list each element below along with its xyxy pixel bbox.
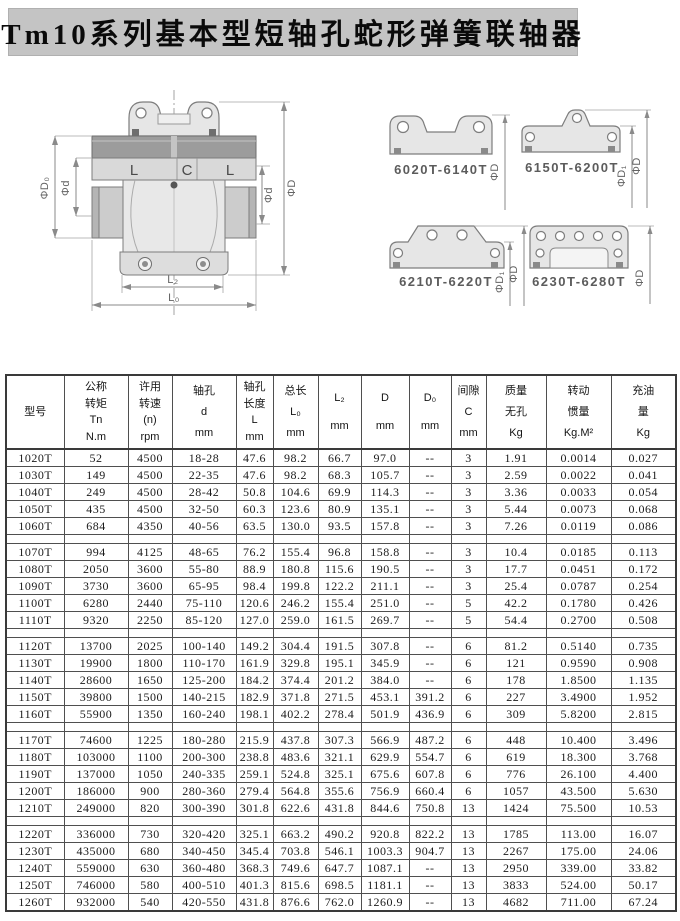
cell-oil-fill: 0.041 (611, 467, 676, 484)
variant-range-label: 6210T-6220T (399, 274, 493, 289)
cell-l2: 647.7 (318, 860, 361, 877)
cell-bore-d: 360-480 (172, 860, 236, 877)
cell-model: 1190T (6, 766, 64, 783)
cell-model: 1070T (6, 544, 64, 561)
cell-bore-d: 55-80 (172, 561, 236, 578)
cell-clearance: 6 (451, 732, 486, 749)
cell-total-length: 815.6 (273, 877, 318, 894)
cell-allowable-speed: 1350 (128, 706, 172, 723)
col-header-line: Kg (509, 427, 522, 439)
col-header-lines: 公称转矩TnN.m (65, 376, 128, 448)
cell-d: 920.8 (361, 826, 409, 843)
cell-d0: 660.4 (409, 783, 451, 800)
cell-mass: 1.91 (486, 449, 546, 467)
cell-d0: -- (409, 544, 451, 561)
col-header-clearance: 间隙Cmm (451, 375, 486, 449)
cell-d: 251.0 (361, 595, 409, 612)
cell-oil-fill: 33.82 (611, 860, 676, 877)
cell-allowable-speed: 4500 (128, 449, 172, 467)
cell-d0: -- (409, 484, 451, 501)
table-row: 1250T746000580400-510401.3815.6698.51181… (6, 877, 676, 894)
table-row: 1180T1030001100200-300238.8483.6321.1629… (6, 749, 676, 766)
col-header-lines: 轴孔dmm (173, 376, 236, 448)
col-header-lines: D₀mm (410, 376, 451, 448)
spacer-cell (236, 817, 273, 826)
cell-inertia: 0.0073 (546, 501, 611, 518)
cell-d: 105.7 (361, 467, 409, 484)
cell-oil-fill: 16.07 (611, 826, 676, 843)
spacer-cell (318, 535, 361, 544)
cell-clearance: 3 (451, 484, 486, 501)
spacer-cell (6, 817, 64, 826)
group-spacer-row (6, 535, 676, 544)
cell-bore-d: 65-95 (172, 578, 236, 595)
cell-clearance: 13 (451, 800, 486, 817)
cell-total-length: 98.2 (273, 467, 318, 484)
cell-bore-d: 28-42 (172, 484, 236, 501)
cell-clearance: 3 (451, 578, 486, 595)
table-row: 1230T435000680340-450345.4703.8546.11003… (6, 843, 676, 860)
cell-mass: 42.2 (486, 595, 546, 612)
cell-nominal-torque: 52 (64, 449, 128, 467)
table-row: 1090T3730360065-9598.4199.8122.2211.1--3… (6, 578, 676, 595)
variant-range-label: 6230T-6280T (532, 274, 626, 289)
cell-nominal-torque: 137000 (64, 766, 128, 783)
cell-d0: -- (409, 449, 451, 467)
cell-d: 1087.1 (361, 860, 409, 877)
cell-bore-length: 50.8 (236, 484, 273, 501)
cell-bore-d: 160-240 (172, 706, 236, 723)
spacer-cell (128, 817, 172, 826)
col-header-model: 型号 (6, 375, 64, 449)
dim-label-phi-d: ΦD (631, 157, 643, 175)
col-header-line: 惯量 (568, 406, 590, 418)
spacer-cell (273, 629, 318, 638)
cell-bore-length: 238.8 (236, 749, 273, 766)
cell-total-length: 374.4 (273, 672, 318, 689)
spacer-cell (611, 723, 676, 732)
spacer-cell (451, 817, 486, 826)
cell-bore-d: 85-120 (172, 612, 236, 629)
cell-d0: -- (409, 655, 451, 672)
cell-model: 1080T (6, 561, 64, 578)
cell-oil-fill: 0.254 (611, 578, 676, 595)
cell-allowable-speed: 540 (128, 894, 172, 912)
col-header-lines: 充油量Kg (612, 376, 676, 448)
variant-drawing-6210t: ΦD₁ ΦD 6210T-6220T (388, 222, 538, 308)
dim-label-phi-d0: ΦD₀ (39, 177, 51, 200)
spacer-cell (546, 817, 611, 826)
col-header-line: 轴孔 (244, 381, 266, 393)
cell-mass: 2.59 (486, 467, 546, 484)
cell-oil-fill: 0.086 (611, 518, 676, 535)
cell-bore-d: 240-335 (172, 766, 236, 783)
cell-l2: 325.1 (318, 766, 361, 783)
cell-total-length: 524.8 (273, 766, 318, 783)
cell-allowable-speed: 4350 (128, 518, 172, 535)
col-header-lines: 轴孔长度Lmm (237, 376, 273, 448)
cell-model: 1240T (6, 860, 64, 877)
cell-bore-length: 47.6 (236, 449, 273, 467)
cell-l2: 191.5 (318, 638, 361, 655)
cell-nominal-torque: 13700 (64, 638, 128, 655)
cell-oil-fill: 3.496 (611, 732, 676, 749)
cell-oil-fill: 5.630 (611, 783, 676, 800)
cell-allowable-speed: 4500 (128, 484, 172, 501)
flange-joint (171, 136, 177, 158)
col-header-total-length: 总长L₀mm (273, 375, 318, 449)
cell-l2: 431.8 (318, 800, 361, 817)
cell-total-length: 259.0 (273, 612, 318, 629)
cell-d: 269.7 (361, 612, 409, 629)
cell-inertia: 0.9590 (546, 655, 611, 672)
col-header-line: N.m (86, 431, 106, 443)
cell-oil-fill: 0.426 (611, 595, 676, 612)
spacer-cell (172, 629, 236, 638)
col-header-nominal-torque: 公称转矩TnN.m (64, 375, 128, 449)
cell-allowable-speed: 1225 (128, 732, 172, 749)
cell-oil-fill: 0.908 (611, 655, 676, 672)
cell-clearance: 3 (451, 561, 486, 578)
cell-oil-fill: 0.027 (611, 449, 676, 467)
cell-l2: 355.6 (318, 783, 361, 800)
cell-bore-length: 120.6 (236, 595, 273, 612)
variant-drawing-6020t: ΦD 6020T-6140T (388, 110, 520, 212)
table-row: 1260T932000540420-550431.8876.6762.01260… (6, 894, 676, 912)
cell-bore-d: 200-300 (172, 749, 236, 766)
cell-d: 158.8 (361, 544, 409, 561)
cell-nominal-torque: 336000 (64, 826, 128, 843)
col-header-line: 转矩 (85, 398, 107, 410)
col-header-line: d (201, 406, 207, 418)
cell-total-length: 437.8 (273, 732, 318, 749)
cell-inertia: 113.00 (546, 826, 611, 843)
variant-drawing-6230t: ΦD 6230T-6280T (528, 222, 663, 306)
cell-bore-d: 40-56 (172, 518, 236, 535)
cell-clearance: 3 (451, 544, 486, 561)
cell-oil-fill: 24.06 (611, 843, 676, 860)
cell-allowable-speed: 3600 (128, 561, 172, 578)
col-header-line: (n) (143, 414, 156, 426)
oil-plug (171, 182, 178, 189)
cover-shape (522, 110, 620, 152)
table-row: 1020T52450018-2847.698.266.797.0--31.910… (6, 449, 676, 467)
cell-model: 1170T (6, 732, 64, 749)
cell-inertia: 0.1780 (546, 595, 611, 612)
cell-bore-length: 60.3 (236, 501, 273, 518)
cell-l2: 155.4 (318, 595, 361, 612)
variant-drawing-6150t: ΦD₁ ΦD 6150T-6200T (520, 104, 678, 212)
group-spacer-row (6, 629, 676, 638)
cell-nominal-torque: 186000 (64, 783, 128, 800)
bottom-flange (120, 252, 228, 275)
cell-bore-length: 301.8 (236, 800, 273, 817)
cell-l2: 68.3 (318, 467, 361, 484)
table-row: 1190T1370001050240-335259.1524.8325.1675… (6, 766, 676, 783)
cell-d: 501.9 (361, 706, 409, 723)
cell-bore-d: 100-140 (172, 638, 236, 655)
cell-bore-d: 280-360 (172, 783, 236, 800)
cell-nominal-torque: 28600 (64, 672, 128, 689)
col-header-line: 量 (638, 406, 649, 418)
cell-bore-d: 180-280 (172, 732, 236, 749)
col-header-lines: 型号 (7, 376, 64, 448)
cell-total-length: 663.2 (273, 826, 318, 843)
cell-bore-length: 98.4 (236, 578, 273, 595)
cell-clearance: 3 (451, 467, 486, 484)
group-spacer-row (6, 723, 676, 732)
dim-label-c: C (182, 162, 193, 179)
spacer-cell (318, 629, 361, 638)
cell-nominal-torque: 2050 (64, 561, 128, 578)
cell-model: 1060T (6, 518, 64, 535)
cell-clearance: 6 (451, 749, 486, 766)
spacer-cell (409, 817, 451, 826)
cell-model: 1140T (6, 672, 64, 689)
cell-mass: 1424 (486, 800, 546, 817)
spacer-cell (318, 723, 361, 732)
spacer-cell (64, 535, 128, 544)
cell-mass: 619 (486, 749, 546, 766)
spacer-cell (486, 817, 546, 826)
spacer-cell (273, 723, 318, 732)
cell-inertia: 0.0022 (546, 467, 611, 484)
cell-mass: 3833 (486, 877, 546, 894)
cell-mass: 1057 (486, 783, 546, 800)
cell-bore-length: 149.2 (236, 638, 273, 655)
cell-d0: -- (409, 638, 451, 655)
cell-total-length: 703.8 (273, 843, 318, 860)
cell-d: 1181.1 (361, 877, 409, 894)
spacer-cell (6, 629, 64, 638)
cell-total-length: 371.8 (273, 689, 318, 706)
cell-inertia: 524.00 (546, 877, 611, 894)
cell-nominal-torque: 435 (64, 501, 128, 518)
cell-nominal-torque: 74600 (64, 732, 128, 749)
spacer-cell (273, 535, 318, 544)
table-row: 1240T559000630360-480368.3749.6647.71087… (6, 860, 676, 877)
cell-allowable-speed: 630 (128, 860, 172, 877)
cell-allowable-speed: 580 (128, 877, 172, 894)
cell-d0: -- (409, 595, 451, 612)
cell-model: 1040T (6, 484, 64, 501)
cell-d0: 822.2 (409, 826, 451, 843)
col-header-line: rpm (141, 431, 160, 443)
col-header-lines: L₂mm (319, 376, 361, 448)
cell-model: 1030T (6, 467, 64, 484)
cell-inertia: 0.0185 (546, 544, 611, 561)
variant-range-label: 6150T-6200T (525, 160, 619, 175)
cell-allowable-speed: 1050 (128, 766, 172, 783)
cell-nominal-torque: 684 (64, 518, 128, 535)
cell-bore-length: 88.9 (236, 561, 273, 578)
spacer-cell (486, 535, 546, 544)
cell-nominal-torque: 994 (64, 544, 128, 561)
cell-mass: 5.44 (486, 501, 546, 518)
cell-clearance: 5 (451, 612, 486, 629)
cover-shape (390, 226, 504, 268)
cell-model: 1150T (6, 689, 64, 706)
cell-bore-length: 127.0 (236, 612, 273, 629)
cell-mass: 17.7 (486, 561, 546, 578)
col-header-line: D (381, 392, 389, 404)
cell-d0: 487.2 (409, 732, 451, 749)
cell-bore-length: 401.3 (236, 877, 273, 894)
dim-label-phi-big-d: ΦD (286, 179, 298, 197)
cell-oil-fill: 0.113 (611, 544, 676, 561)
table-row: 1060T684435040-5663.5130.093.5157.8--37.… (6, 518, 676, 535)
cell-inertia: 0.0451 (546, 561, 611, 578)
col-header-line: 轴孔 (193, 385, 215, 397)
cell-bore-d: 110-170 (172, 655, 236, 672)
bracket-hole-right (202, 108, 212, 118)
cell-total-length: 98.2 (273, 449, 318, 467)
title-banner: Tm10系列基本型短轴孔蛇形弹簧联轴器 (8, 8, 578, 56)
col-header-line: Kg (637, 427, 650, 439)
spacer-cell (451, 629, 486, 638)
cell-mass: 4682 (486, 894, 546, 912)
cell-d0: -- (409, 518, 451, 535)
page-title: Tm10系列基本型短轴孔蛇形弹簧联轴器 (1, 11, 585, 53)
cell-clearance: 13 (451, 894, 486, 912)
cell-d: 97.0 (361, 449, 409, 467)
col-header-line: mm (286, 427, 304, 439)
cell-total-length: 199.8 (273, 578, 318, 595)
col-header-bore-length: 轴孔长度Lmm (236, 375, 273, 449)
col-header-line: Tn (90, 414, 103, 426)
cell-mass: 227 (486, 689, 546, 706)
cell-d0: 904.7 (409, 843, 451, 860)
cell-clearance: 13 (451, 860, 486, 877)
cell-nominal-torque: 249 (64, 484, 128, 501)
col-header-line: Kg.M² (564, 427, 593, 439)
cell-d: 345.9 (361, 655, 409, 672)
cell-allowable-speed: 2025 (128, 638, 172, 655)
group-spacer-row (6, 817, 676, 826)
col-header-bore-d: 轴孔dmm (172, 375, 236, 449)
cell-bore-d: 22-35 (172, 467, 236, 484)
cell-bore-length: 161.9 (236, 655, 273, 672)
cell-allowable-speed: 1500 (128, 689, 172, 706)
col-header-line: L₂ (334, 392, 344, 404)
cell-l2: 546.1 (318, 843, 361, 860)
cell-total-length: 876.6 (273, 894, 318, 912)
cell-inertia: 0.0787 (546, 578, 611, 595)
col-header-lines: 总长L₀mm (274, 376, 318, 448)
cell-model: 1220T (6, 826, 64, 843)
dim-label-phi-d-left: Φd (60, 180, 72, 196)
spacer-cell (361, 629, 409, 638)
variant-range-label: 6020T-6140T (394, 162, 488, 177)
cell-total-length: 246.2 (273, 595, 318, 612)
cell-inertia: 0.2700 (546, 612, 611, 629)
cell-oil-fill: 1.952 (611, 689, 676, 706)
col-header-line: mm (195, 427, 213, 439)
cell-l2: 271.5 (318, 689, 361, 706)
spacer-cell (546, 535, 611, 544)
cell-d0: -- (409, 561, 451, 578)
table-row: 1040T249450028-4250.8104.669.9114.3--33.… (6, 484, 676, 501)
col-header-lines: 质量无孔Kg (487, 376, 546, 448)
cell-d: 157.8 (361, 518, 409, 535)
cell-inertia: 3.4900 (546, 689, 611, 706)
cell-l2: 307.3 (318, 732, 361, 749)
cell-inertia: 0.0033 (546, 484, 611, 501)
cell-bore-d: 300-390 (172, 800, 236, 817)
cell-l2: 96.8 (318, 544, 361, 561)
col-header-d: Dmm (361, 375, 409, 449)
coupling-section-drawing: L C L ΦD₀ Φd Φd (8, 72, 340, 320)
spacer-cell (361, 535, 409, 544)
cell-nominal-torque: 39800 (64, 689, 128, 706)
cell-bore-length: 76.2 (236, 544, 273, 561)
cell-oil-fill: 67.24 (611, 894, 676, 912)
cell-l2: 490.2 (318, 826, 361, 843)
cell-d: 1260.9 (361, 894, 409, 912)
cell-allowable-speed: 3600 (128, 578, 172, 595)
col-header-d0: D₀mm (409, 375, 451, 449)
cell-allowable-speed: 2440 (128, 595, 172, 612)
cell-model: 1100T (6, 595, 64, 612)
col-header-line: 质量 (505, 385, 527, 397)
cell-bore-d: 125-200 (172, 672, 236, 689)
cell-clearance: 13 (451, 843, 486, 860)
cell-bore-length: 431.8 (236, 894, 273, 912)
cell-inertia: 0.5140 (546, 638, 611, 655)
cell-l2: 122.2 (318, 578, 361, 595)
cell-bore-d: 75-110 (172, 595, 236, 612)
spec-table: 型号公称转矩TnN.m许用转速(n)rpm轴孔dmm轴孔长度Lmm总长L₀mmL… (5, 374, 677, 912)
cell-allowable-speed: 2250 (128, 612, 172, 629)
cell-mass: 448 (486, 732, 546, 749)
col-header-line: 许用 (139, 381, 161, 393)
cell-total-length: 329.8 (273, 655, 318, 672)
col-header-inertia: 转动惯量Kg.M² (546, 375, 611, 449)
bolt-left (132, 129, 139, 136)
cell-d: 190.5 (361, 561, 409, 578)
cell-inertia: 175.00 (546, 843, 611, 860)
cell-d: 675.6 (361, 766, 409, 783)
cell-allowable-speed: 1650 (128, 672, 172, 689)
cell-nominal-torque: 249000 (64, 800, 128, 817)
col-header-line: 总长 (285, 385, 307, 397)
cell-d: 307.8 (361, 638, 409, 655)
spacer-cell (172, 535, 236, 544)
cell-d0: -- (409, 578, 451, 595)
cell-oil-fill: 50.17 (611, 877, 676, 894)
table-row: 1200T186000900280-360279.4564.8355.6756.… (6, 783, 676, 800)
col-header-allowable-speed: 许用转速(n)rpm (128, 375, 172, 449)
col-header-line: 长度 (244, 398, 266, 410)
cell-clearance: 6 (451, 706, 486, 723)
col-header-line: mm (376, 420, 394, 432)
spacer-cell (128, 723, 172, 732)
spacer-cell (64, 817, 128, 826)
cell-mass: 776 (486, 766, 546, 783)
col-header-line: 转动 (568, 385, 590, 397)
cell-clearance: 3 (451, 501, 486, 518)
cell-d0: 554.7 (409, 749, 451, 766)
cell-total-length: 130.0 (273, 518, 318, 535)
cell-d0: -- (409, 877, 451, 894)
col-header-lines: Dmm (362, 376, 409, 448)
cell-d0: -- (409, 501, 451, 518)
table-row: 1070T994412548-6576.2155.496.8158.8--310… (6, 544, 676, 561)
cell-bore-length: 215.9 (236, 732, 273, 749)
cell-nominal-torque: 435000 (64, 843, 128, 860)
spacer-cell (6, 535, 64, 544)
cell-model: 1020T (6, 449, 64, 467)
